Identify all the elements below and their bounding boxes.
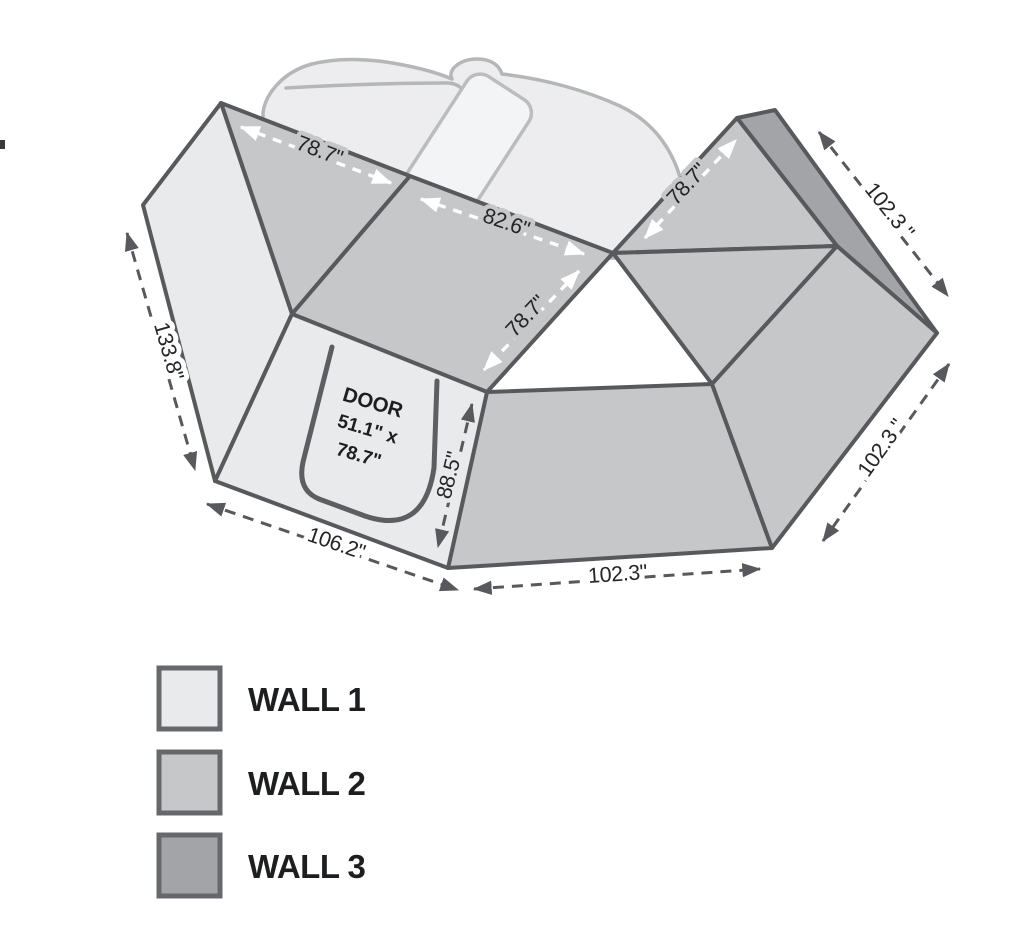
legend-swatch-wall1 xyxy=(159,668,220,729)
legend-swatch-wall2 xyxy=(159,752,220,813)
right-upper-label: 102.3 " xyxy=(860,178,919,244)
edge-artifact xyxy=(0,140,5,149)
diagram-canvas: 133.8" 106.2" 102.3" 102.3 " 102.3 " 88.… xyxy=(0,0,1024,949)
legend-label-wall1: WALL 1 xyxy=(248,681,366,718)
legend: WALL 1 WALL 2 WALL 3 xyxy=(159,668,366,896)
bottom-center-label: 102.3" xyxy=(587,560,648,588)
legend-label-wall2: WALL 2 xyxy=(248,765,366,802)
legend-label-wall3: WALL 3 xyxy=(248,848,366,885)
legend-swatch-wall3 xyxy=(159,835,220,896)
awning-dimension-diagram: 133.8" 106.2" 102.3" 102.3 " 102.3 " 88.… xyxy=(0,0,1024,949)
